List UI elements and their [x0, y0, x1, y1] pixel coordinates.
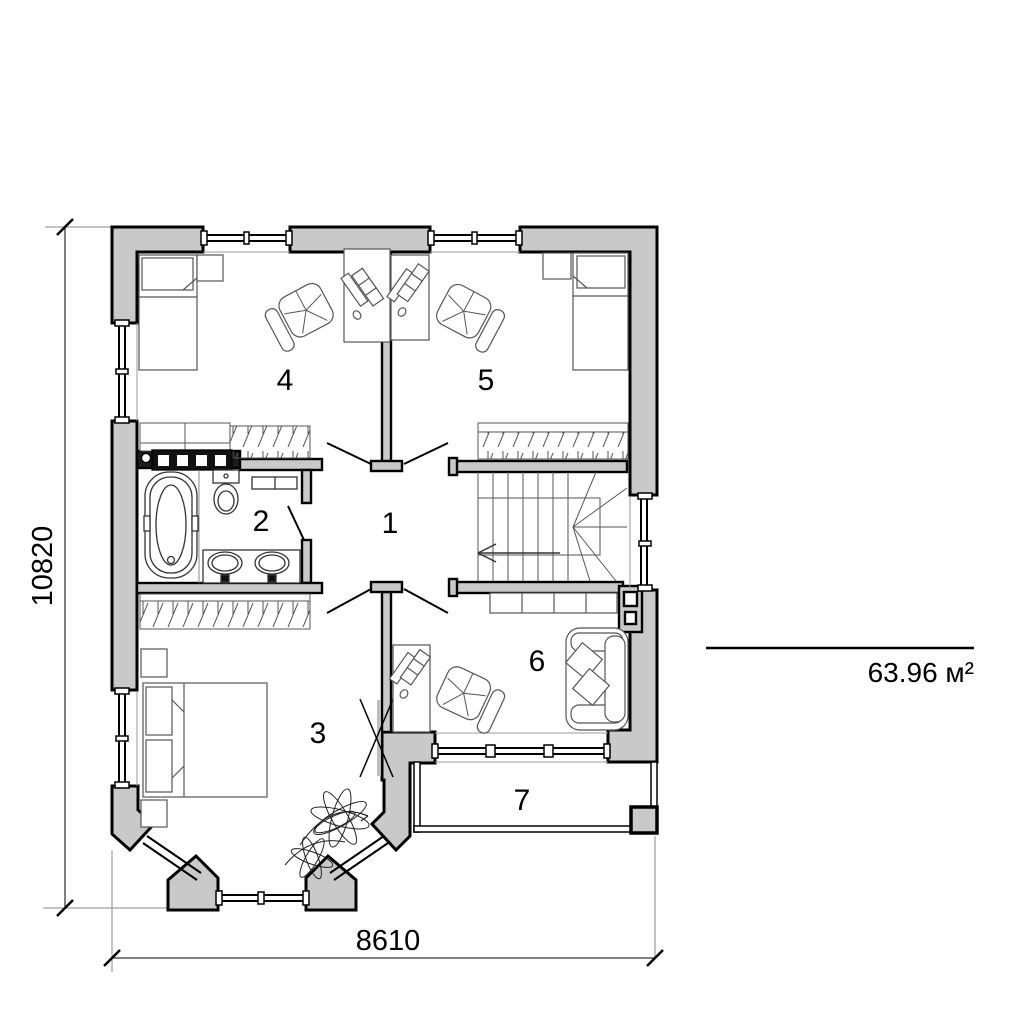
dimension-horizontal: 8610	[104, 925, 663, 966]
room-label-6: 6	[529, 645, 546, 678]
wardrobe-room3	[140, 594, 310, 629]
window-left-lower	[115, 688, 129, 788]
sofa	[566, 628, 628, 730]
dim-horizontal-label: 8610	[356, 925, 421, 957]
room-label-5: 5	[478, 364, 495, 397]
area-annotation: 63.96 м²	[706, 648, 974, 688]
bed-room4	[139, 255, 197, 370]
window-left-upper	[115, 320, 129, 423]
nightstand-room3-bottom	[141, 800, 167, 827]
office-chair-room5	[430, 281, 508, 354]
floor-plan-page: 10820 8610 63.96 м² 1 2 3 4 5 6 7	[0, 0, 1024, 1010]
nightstand-room3-top	[141, 649, 167, 677]
wall-stair-bottom	[451, 582, 623, 593]
balcony	[414, 762, 657, 833]
office-chair-room4	[261, 280, 339, 353]
door-36-leaf	[377, 700, 381, 776]
dim-vertical-label: 10820	[27, 526, 59, 607]
desk-room6	[390, 645, 431, 732]
room-label-2: 2	[253, 505, 270, 538]
wall-left-middle	[112, 421, 137, 690]
wall-bath-bottom	[137, 583, 322, 593]
window-bay-bottom	[216, 891, 309, 905]
bath-shelf	[252, 477, 297, 489]
nightstand-room4	[197, 255, 223, 281]
door-room6	[404, 589, 448, 613]
balcony-rail-left	[414, 762, 420, 832]
wardrobe-room4-hatch	[230, 426, 310, 458]
office-chair-room6	[431, 664, 508, 736]
wall-stair-top-cap	[449, 458, 457, 475]
room-label-1: 1	[382, 507, 399, 540]
wall-partition-36	[382, 592, 391, 732]
wardrobe-room5	[478, 423, 628, 459]
window-top-2	[428, 231, 522, 245]
wall-bath-top-thin	[240, 459, 322, 470]
double-sink	[203, 550, 300, 583]
dimension-vertical: 10820	[27, 219, 73, 916]
desk-room4	[341, 249, 390, 342]
room-label-4: 4	[277, 364, 294, 397]
area-label: 63.96 м²	[868, 657, 974, 688]
room-label-3: 3	[310, 717, 327, 750]
balcony-rail-bottom	[414, 826, 657, 832]
vent-niche-1	[624, 592, 637, 606]
wall-bath-east-lower	[302, 540, 311, 583]
balcony-pillar	[631, 807, 657, 833]
furniture-room5	[387, 253, 628, 370]
wall-stair-bottom-cap	[449, 579, 457, 596]
furniture-room3	[141, 649, 371, 881]
window-right	[638, 493, 652, 591]
toilet	[213, 470, 239, 514]
door-bathroom	[288, 506, 304, 540]
furniture-room6	[390, 593, 628, 735]
door-room3	[327, 589, 371, 613]
vent-niche-2	[625, 612, 636, 624]
bed-room5	[573, 253, 628, 370]
door-room5	[404, 443, 448, 464]
floor-plan-drawing: 10820 8610 63.96 м² 1 2 3 4 5 6 7	[0, 0, 1024, 1010]
nightstand-room5	[543, 253, 571, 279]
room-label-7: 7	[514, 784, 531, 817]
furniture-room4	[139, 249, 390, 370]
stair-direction-arrow	[478, 544, 560, 562]
wardrobe-room4-cabinet	[140, 423, 230, 451]
desk-room5	[387, 255, 429, 340]
stairs	[478, 472, 627, 581]
bathtub	[144, 472, 198, 578]
double-bed-room3	[143, 683, 267, 797]
wall-partition-45-cap	[371, 461, 402, 471]
door-room4	[327, 443, 371, 464]
shelf-room6	[490, 593, 617, 613]
bay-block-bottom-right	[306, 856, 356, 910]
wall-bath-east-upper	[302, 470, 311, 503]
window-room6-bottom	[432, 744, 610, 758]
radiator	[142, 450, 233, 470]
wall-top-center	[290, 227, 430, 252]
wall-stair-top	[451, 461, 627, 472]
wall-partition-36-cap	[371, 582, 402, 592]
window-top-1	[201, 231, 292, 245]
stair-winders	[573, 472, 627, 581]
